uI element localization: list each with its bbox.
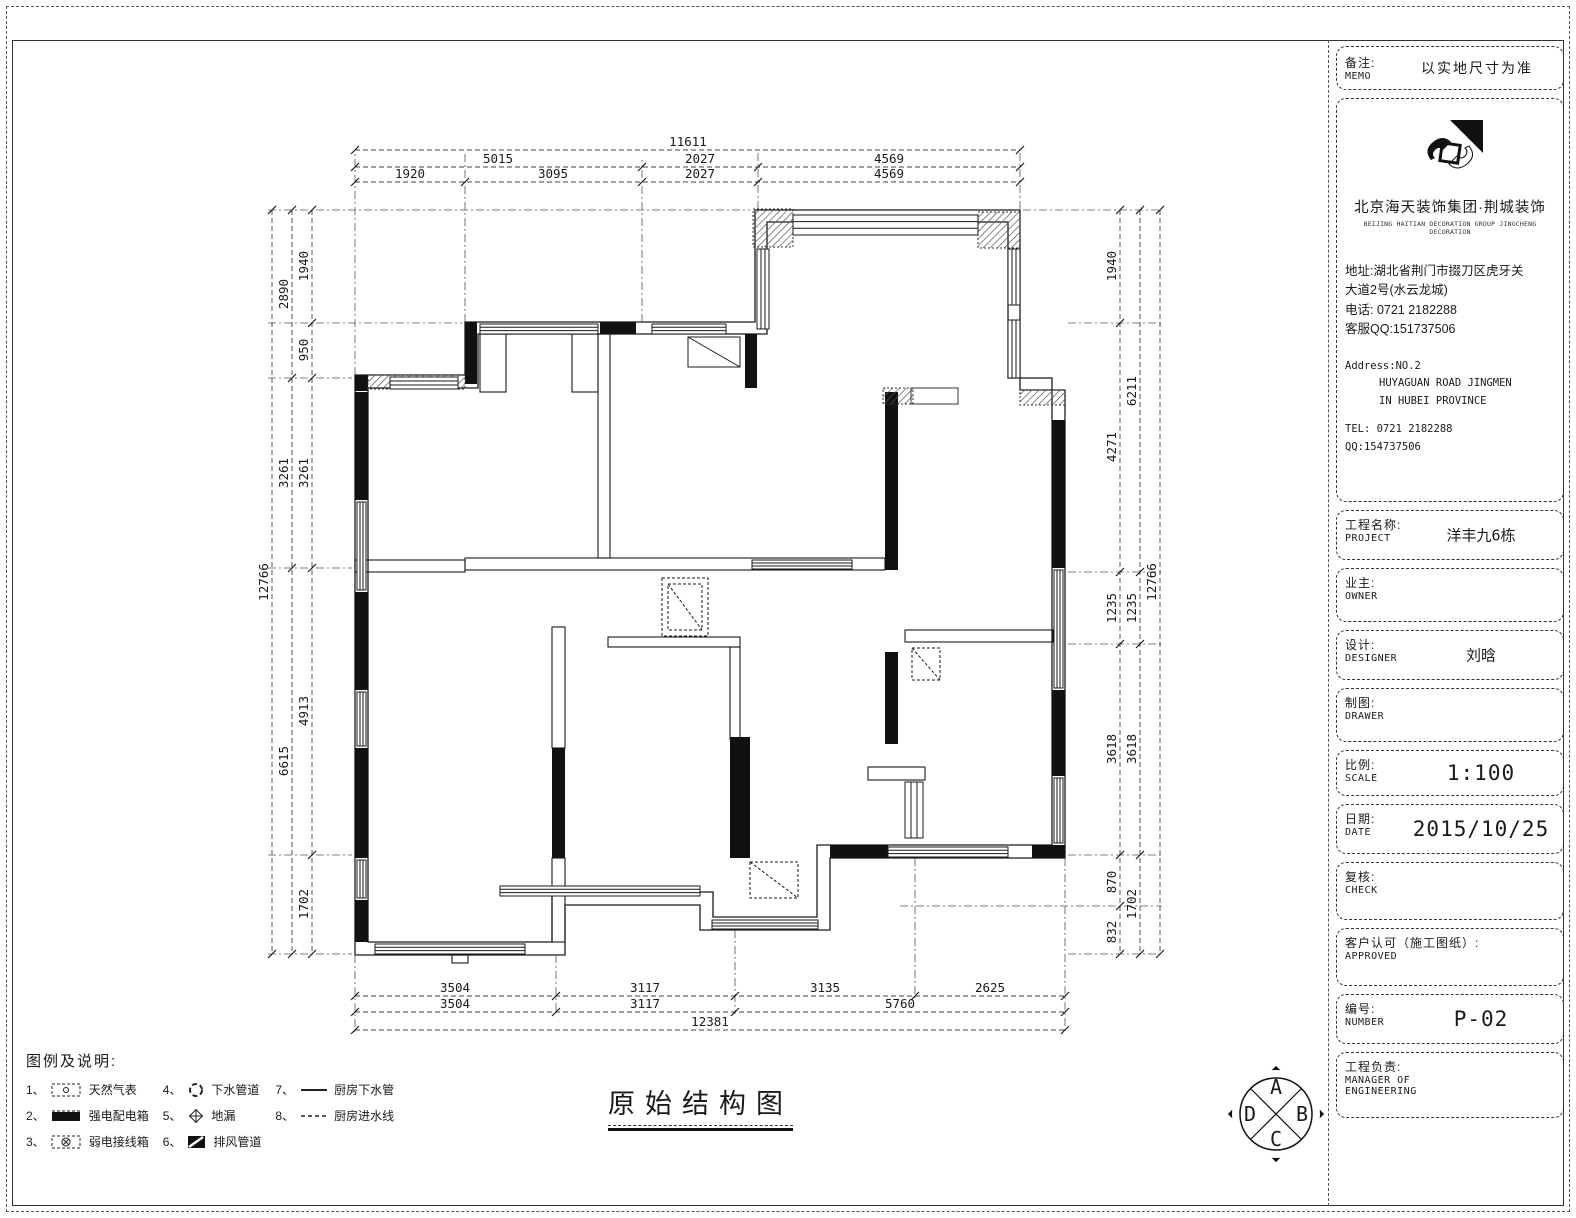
dim-label: 3261 — [296, 458, 311, 488]
orientation-compass: A B C D — [1222, 1060, 1330, 1168]
compass-letter-b: B — [1296, 1102, 1308, 1126]
legend-item-number: 7、 — [275, 1081, 294, 1098]
drain-pipe-icon — [187, 1082, 205, 1098]
dim-label: 4271 — [1104, 432, 1119, 462]
dim-label: 3504 — [440, 996, 470, 1011]
number-field: 编号: NUMBER P-02 — [1336, 994, 1564, 1044]
legend-item-number: 4、 — [163, 1081, 182, 1098]
legend-item: 3、 弱电接线箱 — [26, 1133, 149, 1150]
company-phone: 电话: 0721 2182288 — [1345, 301, 1555, 320]
legend-item-number: 8、 — [275, 1107, 294, 1124]
company-name-cn: 北京海天装饰集团·荆城装饰 — [1345, 196, 1555, 217]
dim-label: 3095 — [538, 166, 568, 181]
legend: 图例及说明: 1、 天然气表 2、 强电配电箱 — [26, 1050, 426, 1150]
designer-field: 设计: DESIGNER 刘晗 — [1336, 630, 1564, 680]
dim-label: 3261 — [276, 458, 291, 488]
title-block: 备注: MEMO 以实地尺寸为准 北京海天装饰集团·荆城装饰 BEIJING H… — [1336, 46, 1564, 1202]
dim-label: 3618 — [1124, 734, 1139, 764]
floor-plan: 11611 5015 2027 4569 1920 3095 2027 4569… — [0, 0, 1330, 1218]
company-qq: 客服QQ:151737506 — [1345, 320, 1555, 339]
drawer-label-en: DRAWER — [1345, 711, 1555, 722]
legend-item: 8、 厨房进水线 — [275, 1107, 394, 1124]
compass-letter-a: A — [1270, 1075, 1282, 1099]
company-box: 北京海天装饰集团·荆城装饰 BEIJING HAITIAN DECORATION… — [1336, 98, 1564, 502]
company-address-line1: 地址:湖北省荆门市掇刀区虎牙关 — [1345, 262, 1555, 281]
dim-top-total: 11611 — [669, 134, 707, 149]
dim-label: 3135 — [810, 980, 840, 995]
vent-duct-icon — [187, 1134, 207, 1150]
dim-label: 6615 — [276, 746, 291, 776]
dim-label: 1940 — [1104, 251, 1119, 281]
plan-title-underline-solid — [608, 1128, 793, 1131]
legend-item-label: 排风管道 — [213, 1133, 261, 1150]
floor-drain-icon — [187, 1108, 205, 1124]
plan-title-underline-dashed — [608, 1125, 793, 1126]
legend-item: 4、 下水管道 — [163, 1081, 262, 1098]
dim-label: 6211 — [1124, 376, 1139, 406]
plan-title: 原始结构图 — [608, 1082, 793, 1131]
entry-lintel — [911, 388, 958, 404]
legend-item: 7、 厨房下水管 — [275, 1081, 394, 1098]
interior-walls — [355, 334, 1053, 963]
power-distribution-box-icon — [51, 1108, 83, 1124]
company-logo — [1417, 120, 1483, 186]
dim-label: 2027 — [685, 166, 715, 181]
dim-label: 870 — [1104, 871, 1119, 894]
dim-label: 3117 — [630, 996, 660, 1011]
drawer-label-cn: 制图: — [1345, 694, 1555, 711]
dim-label: 2027 — [685, 151, 715, 166]
dim-label: 2890 — [276, 279, 291, 309]
dim-label: 1702 — [1124, 889, 1139, 919]
legend-item-label: 强电配电箱 — [89, 1107, 149, 1124]
dimension-ticks — [268, 146, 1164, 1034]
legend-item: 1、 天然气表 — [26, 1081, 149, 1098]
date-field: 日期: DATE 2015/10/25 — [1336, 804, 1564, 854]
memo-label-en: MEMO — [1345, 71, 1399, 82]
scale-field: 比例: SCALE 1:100 — [1336, 750, 1564, 796]
approved-label-en: APPROVED — [1345, 951, 1555, 962]
dim-label: 1920 — [395, 166, 425, 181]
legend-item-number: 6、 — [163, 1133, 182, 1150]
dim-label: 4569 — [874, 166, 904, 181]
legend-item: 2、 强电配电箱 — [26, 1107, 149, 1124]
legend-item-number: 5、 — [163, 1107, 182, 1124]
legend-item-number: 1、 — [26, 1081, 45, 1098]
dim-label: 950 — [296, 339, 311, 362]
legend-item-label: 厨房进水线 — [334, 1107, 394, 1124]
legend-item-label: 弱电接线箱 — [89, 1133, 149, 1150]
check-label-en: CHECK — [1345, 885, 1555, 896]
legend-item-label: 地漏 — [211, 1107, 235, 1124]
dim-label: 1702 — [296, 889, 311, 919]
dim-label: 5015 — [483, 151, 513, 166]
number-value: P-02 — [1407, 1007, 1555, 1031]
dim-label: 2625 — [975, 980, 1005, 995]
solid-line-icon — [300, 1085, 328, 1095]
legend-item-label: 厨房下水管 — [334, 1081, 394, 1098]
dim-label: 1235 — [1124, 593, 1139, 623]
weak-current-box-icon — [51, 1134, 83, 1150]
dim-label: 1940 — [296, 251, 311, 281]
compass-letter-d: D — [1244, 1102, 1256, 1126]
check-label-cn: 复核: — [1345, 868, 1555, 885]
manager-label-en1: MANAGER OF — [1345, 1075, 1555, 1086]
dim-label: 1235 — [1104, 593, 1119, 623]
dim-label: 3618 — [1104, 734, 1119, 764]
dim-label: 4569 — [874, 151, 904, 166]
legend-item-number: 3、 — [26, 1133, 45, 1150]
project-value: 洋丰九6栋 — [1407, 525, 1555, 546]
designer-value: 刘晗 — [1407, 645, 1555, 666]
check-field: 复核: CHECK — [1336, 862, 1564, 920]
dashed-line-icon — [300, 1111, 328, 1121]
company-address-en1: Address:NO.2 — [1345, 358, 1555, 376]
manager-label-cn: 工程负责: — [1345, 1058, 1555, 1075]
company-address-line2: 大道2号(水云龙城) — [1345, 281, 1555, 300]
approved-field: 客户认可（施工图纸）: APPROVED — [1336, 928, 1564, 986]
scale-value: 1:100 — [1407, 761, 1555, 785]
flue-symbols — [662, 337, 940, 898]
manager-field: 工程负责: MANAGER OF ENGINEERING — [1336, 1052, 1564, 1118]
company-address-en2: HUYAGUAN ROAD JINGMEN — [1345, 375, 1555, 393]
legend-title: 图例及说明: — [26, 1050, 426, 1071]
company-tel-en: TEL: 0721 2182288 — [1345, 421, 1555, 439]
dimension-lines — [272, 150, 1160, 1030]
compass-letter-c: C — [1270, 1127, 1282, 1151]
company-address-en3: IN HUBEI PROVINCE — [1345, 393, 1555, 411]
dim-left-total: 12766 — [256, 563, 271, 601]
memo-box: 备注: MEMO 以实地尺寸为准 — [1336, 46, 1564, 90]
memo-label-cn: 备注: — [1345, 54, 1399, 71]
owner-label-en: OWNER — [1345, 591, 1555, 602]
dimension-labels: 11611 5015 2027 4569 1920 3095 2027 4569… — [256, 134, 1159, 1029]
windows — [357, 215, 1063, 954]
company-name-en: BEIJING HAITIAN DECORATION GROUP JINGCHE… — [1345, 220, 1555, 236]
plan-title-text: 原始结构图 — [608, 1082, 793, 1121]
manager-label-en2: ENGINEERING — [1345, 1086, 1555, 1097]
legend-item-number: 2、 — [26, 1107, 45, 1124]
dim-label: 5760 — [885, 996, 915, 1011]
drawing-sheet: 11611 5015 2027 4569 1920 3095 2027 4569… — [0, 0, 1576, 1218]
dim-label: 4913 — [296, 696, 311, 726]
dim-label: 3117 — [630, 980, 660, 995]
dim-label: 3504 — [440, 980, 470, 995]
project-field: 工程名称: PROJECT 洋丰九6栋 — [1336, 510, 1564, 560]
drawer-field: 制图: DRAWER — [1336, 688, 1564, 742]
legend-item: 6、 排风管道 — [163, 1133, 262, 1150]
legend-item-label: 天然气表 — [89, 1081, 137, 1098]
exterior-walls — [355, 210, 1065, 955]
legend-item-label: 下水管道 — [211, 1081, 259, 1098]
company-qq-en: QQ:154737506 — [1345, 439, 1555, 457]
legend-item: 5、 地漏 — [163, 1107, 262, 1124]
approved-label-cn: 客户认可（施工图纸）: — [1345, 934, 1555, 951]
memo-value: 以实地尺寸为准 — [1399, 58, 1555, 78]
dim-bottom-total: 12381 — [691, 1014, 729, 1029]
gas-meter-icon — [51, 1082, 83, 1098]
extension-lines — [268, 152, 1162, 1032]
dim-label: 832 — [1104, 921, 1119, 944]
date-value: 2015/10/25 — [1407, 817, 1555, 841]
owner-field: 业主: OWNER — [1336, 568, 1564, 622]
dim-right-total: 12766 — [1144, 563, 1159, 601]
owner-label-cn: 业主: — [1345, 574, 1555, 591]
